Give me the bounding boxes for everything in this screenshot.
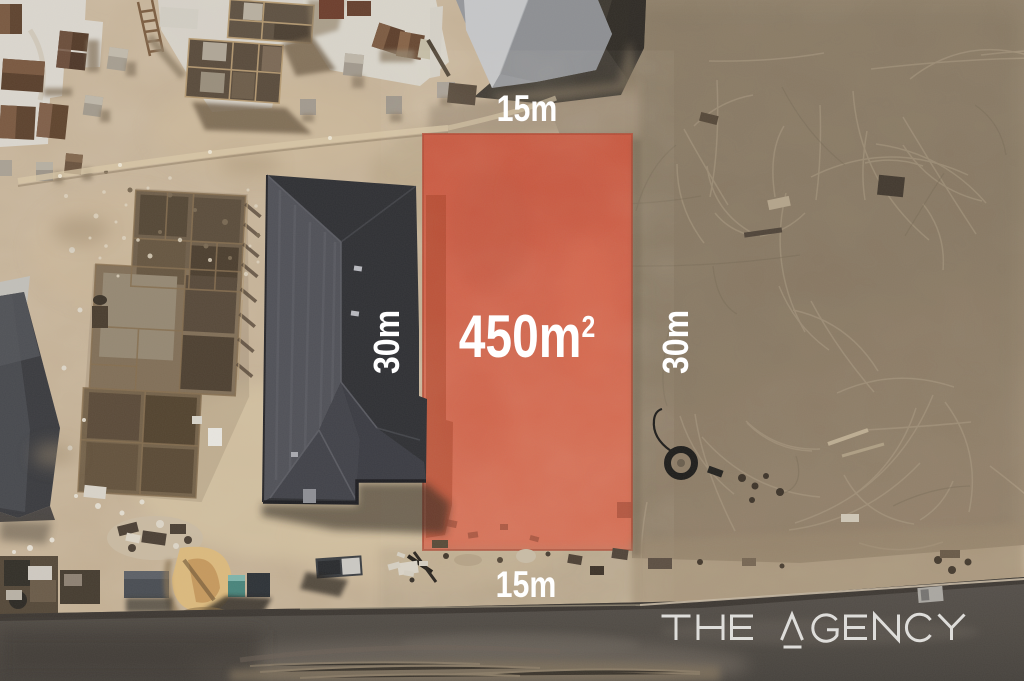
- svg-text:30m: 30m: [655, 310, 696, 374]
- svg-text:15m: 15m: [497, 88, 558, 130]
- svg-text:30m: 30m: [366, 310, 407, 374]
- svg-text:15m: 15m: [496, 564, 557, 606]
- svg-text:450m2: 450m2: [459, 303, 596, 370]
